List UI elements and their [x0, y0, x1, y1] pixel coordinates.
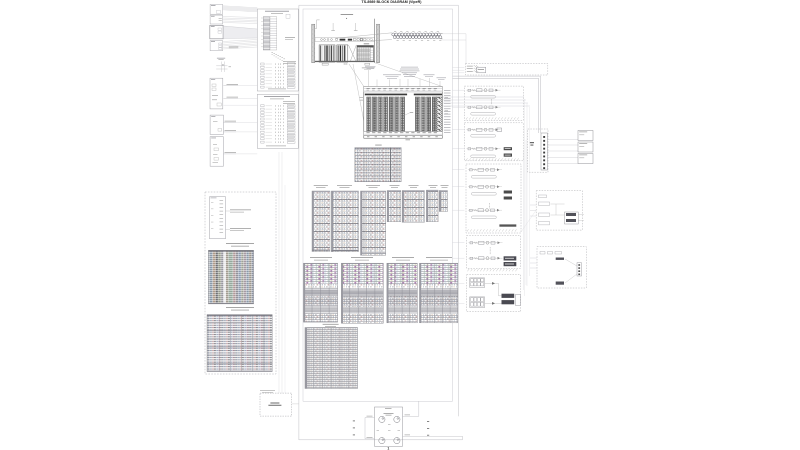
svg-text:1: 1	[387, 447, 389, 450]
svg-text:TS-8989 BLOCK DIAGRAM (VipeR): TS-8989 BLOCK DIAGRAM (VipeR)	[362, 0, 423, 4]
